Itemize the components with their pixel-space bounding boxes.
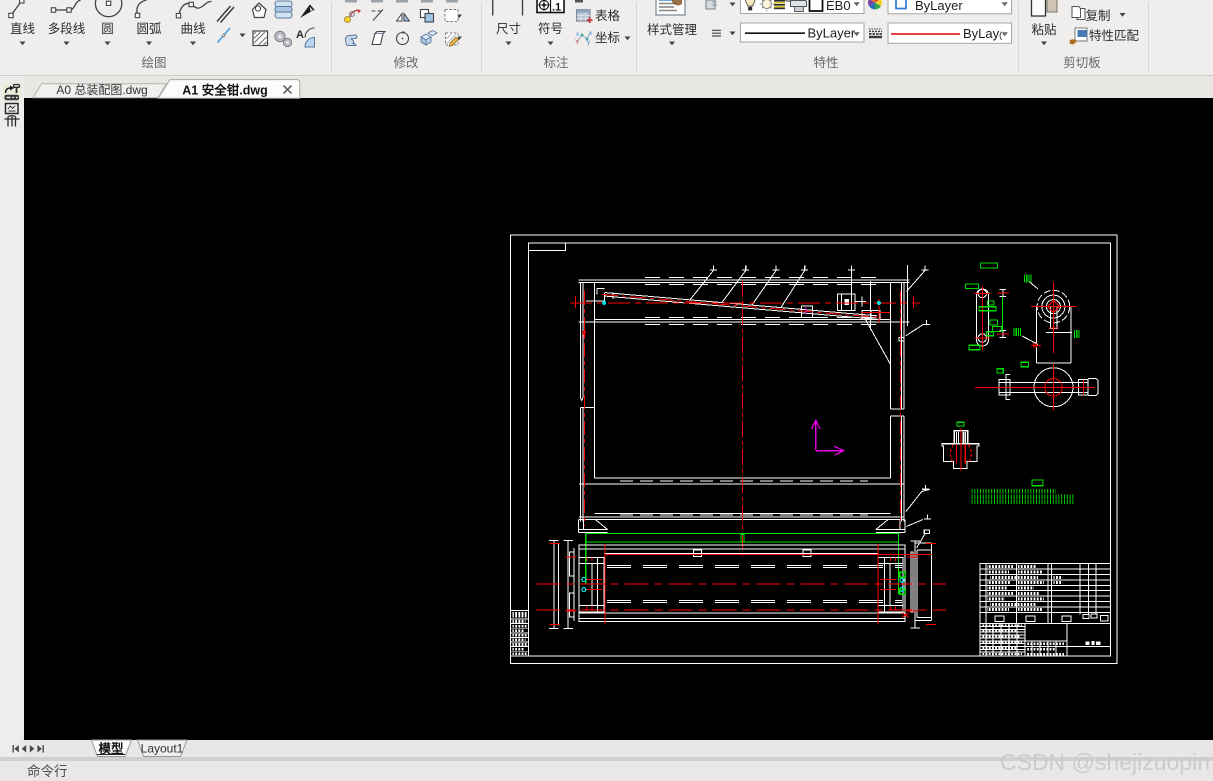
svg-text:特性匹配: 特性匹配 — [1089, 28, 1140, 43]
svg-text:ByLay(: ByLay( — [963, 26, 1002, 41]
svg-text:ByLayer: ByLayer — [915, 0, 963, 13]
svg-text:直线: 直线 — [10, 22, 36, 36]
svg-text:CSDN @shejizuopin: CSDN @shejizuopin — [1000, 749, 1210, 775]
svg-text:粘贴: 粘贴 — [1031, 22, 1056, 37]
svg-text:剪切板: 剪切板 — [1063, 55, 1101, 70]
svg-text:命令行: 命令行 — [27, 763, 68, 779]
svg-text:表格: 表格 — [595, 8, 621, 23]
svg-text:ByLayer: ByLayer — [808, 26, 856, 41]
svg-text:圆: 圆 — [101, 22, 114, 36]
svg-text:曲线: 曲线 — [180, 22, 206, 36]
svg-text:特性: 特性 — [813, 55, 838, 70]
svg-text:多段线: 多段线 — [48, 21, 86, 36]
svg-text:绘图: 绘图 — [141, 55, 166, 70]
svg-text:坐标: 坐标 — [595, 31, 620, 45]
svg-text:A: A — [296, 29, 304, 41]
svg-text:模型: 模型 — [98, 741, 124, 756]
svg-text:样式管理: 样式管理 — [647, 22, 698, 37]
svg-text:圆弧: 圆弧 — [136, 22, 162, 36]
svg-text:尺寸: 尺寸 — [496, 22, 521, 36]
svg-text:标注: 标注 — [543, 55, 569, 70]
svg-text:符号: 符号 — [538, 21, 563, 36]
svg-text:A1 安全钳.dwg: A1 安全钳.dwg — [182, 83, 267, 98]
svg-text:.1: .1 — [552, 2, 561, 14]
svg-text:复制: 复制 — [1085, 9, 1110, 23]
svg-text:Y: Y — [575, 39, 580, 46]
svg-text:修改: 修改 — [393, 55, 419, 70]
svg-text:A0 总装配图.dwg: A0 总装配图.dwg — [56, 83, 147, 97]
svg-text:Layout1: Layout1 — [141, 742, 184, 756]
svg-text:EB0: EB0 — [826, 0, 851, 13]
